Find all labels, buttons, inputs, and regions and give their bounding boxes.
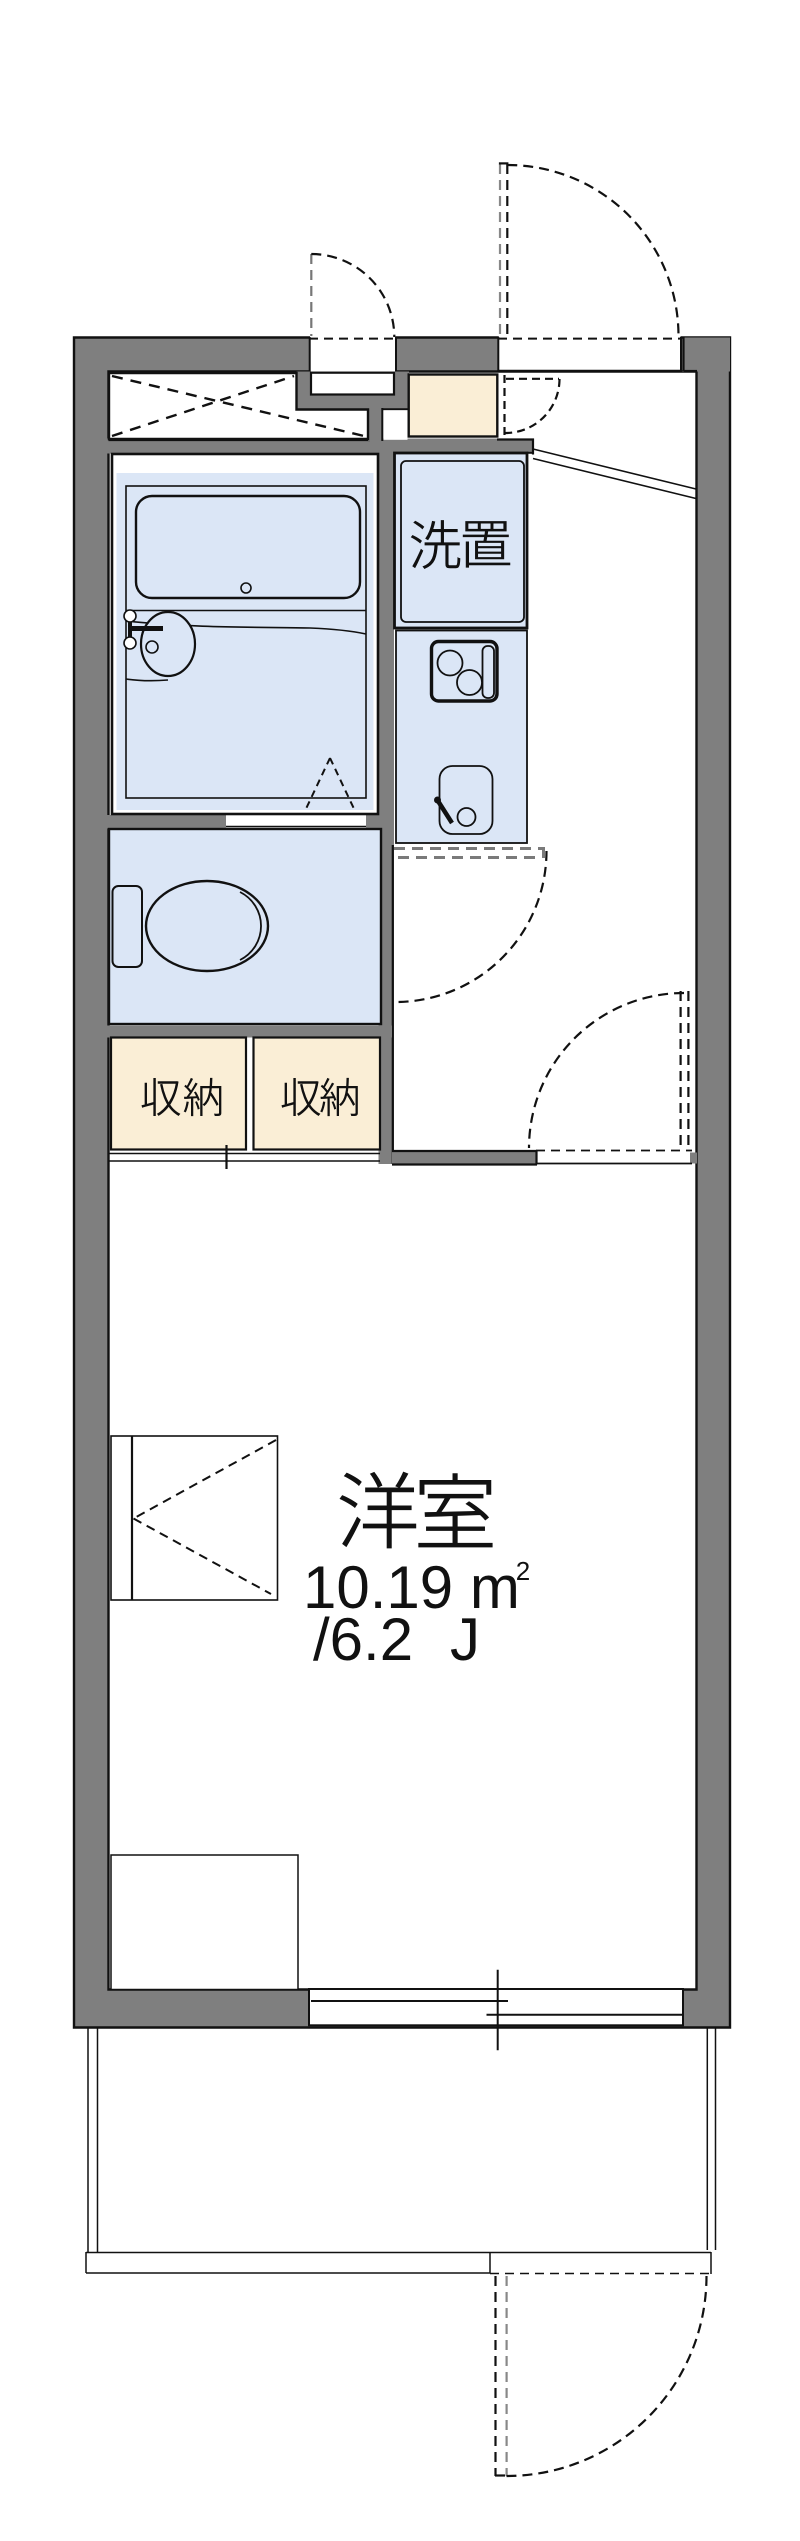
svg-text:/6.2J: /6.2J	[313, 1606, 480, 1673]
